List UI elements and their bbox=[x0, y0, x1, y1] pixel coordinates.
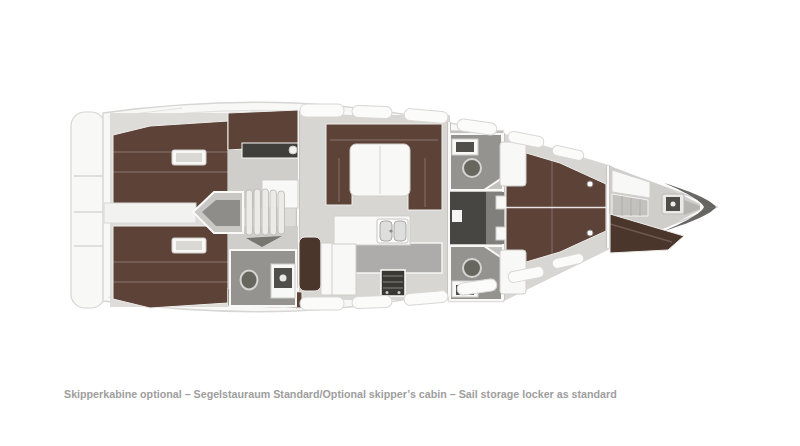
bow-cabinet-sink bbox=[662, 194, 684, 214]
berth-stbd-aft bbox=[113, 226, 228, 308]
stair-treads bbox=[246, 189, 285, 235]
yacht-floorplan-svg bbox=[0, 0, 800, 446]
galley-cabinet bbox=[332, 244, 356, 295]
wardrobe-fwd-top bbox=[500, 142, 526, 186]
toilet bbox=[463, 259, 481, 277]
hatch-glass bbox=[176, 241, 202, 250]
galley-counter bbox=[352, 243, 442, 273]
sink-bowl bbox=[280, 275, 287, 282]
stove bbox=[381, 270, 405, 296]
galley-sink bbox=[377, 219, 408, 243]
toilet bbox=[463, 159, 481, 177]
stern-swim-platform bbox=[71, 112, 105, 308]
nav-seat bbox=[299, 237, 321, 291]
yacht-floorplan-page: Skipperkabine optional – Segelstauraum S… bbox=[0, 0, 800, 446]
passage-latch bbox=[452, 210, 462, 222]
reading-light bbox=[587, 230, 593, 236]
hatch-glass bbox=[176, 153, 202, 162]
aft-corridor bbox=[104, 203, 196, 223]
reading-light bbox=[587, 181, 593, 187]
plan-caption: Skipperkabine optional – Segelstauraum S… bbox=[64, 388, 617, 400]
desk-lamp bbox=[289, 146, 297, 154]
toilet bbox=[241, 271, 258, 290]
